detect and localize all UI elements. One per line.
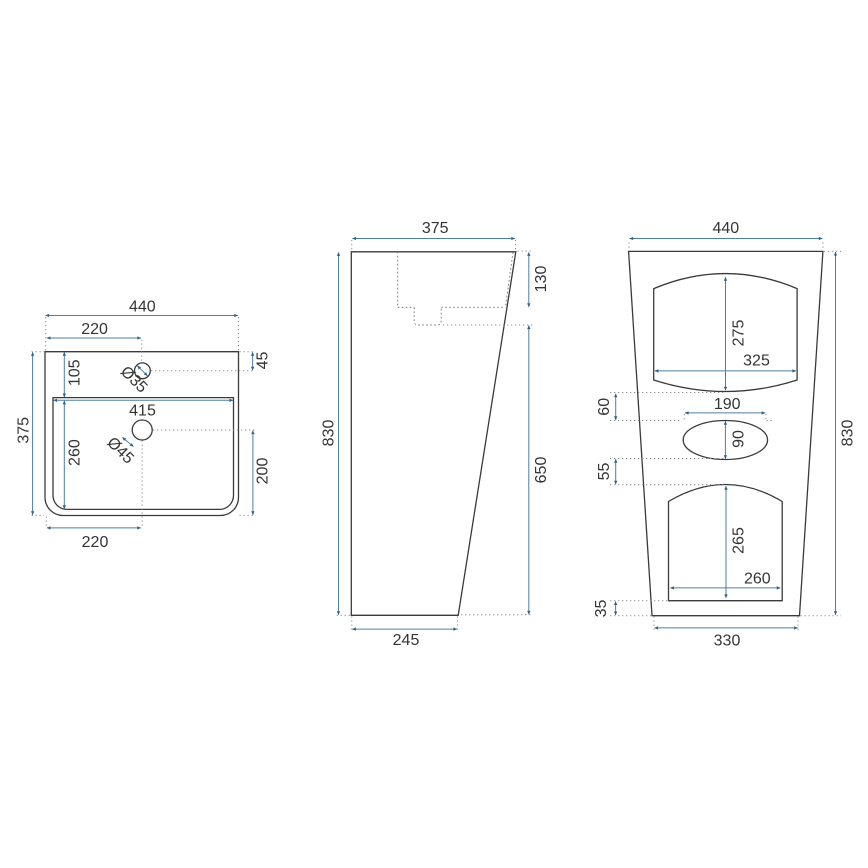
svg-text:265: 265 bbox=[731, 527, 748, 554]
svg-text:415: 415 bbox=[129, 403, 156, 420]
svg-text:260: 260 bbox=[67, 439, 84, 466]
svg-text:440: 440 bbox=[129, 299, 156, 316]
svg-text:220: 220 bbox=[82, 534, 109, 551]
svg-text:130: 130 bbox=[533, 266, 550, 293]
svg-text:330: 330 bbox=[714, 633, 741, 650]
svg-text:830: 830 bbox=[839, 420, 856, 447]
svg-text:220: 220 bbox=[81, 321, 108, 338]
svg-text:90: 90 bbox=[731, 430, 748, 448]
svg-text:440: 440 bbox=[712, 220, 739, 237]
svg-text:190: 190 bbox=[714, 396, 741, 413]
svg-text:245: 245 bbox=[393, 632, 420, 649]
svg-text:830: 830 bbox=[321, 420, 338, 447]
svg-text:105: 105 bbox=[67, 359, 84, 386]
svg-text:35: 35 bbox=[593, 600, 610, 618]
svg-text:55: 55 bbox=[596, 463, 613, 481]
svg-text:45: 45 bbox=[255, 352, 272, 370]
svg-text:60: 60 bbox=[596, 398, 613, 416]
svg-text:275: 275 bbox=[731, 320, 748, 347]
svg-text:200: 200 bbox=[255, 458, 272, 485]
svg-text:260: 260 bbox=[744, 571, 771, 588]
svg-text:375: 375 bbox=[422, 220, 449, 237]
svg-text:325: 325 bbox=[743, 353, 770, 370]
svg-text:375: 375 bbox=[16, 417, 33, 444]
svg-text:650: 650 bbox=[533, 457, 550, 484]
